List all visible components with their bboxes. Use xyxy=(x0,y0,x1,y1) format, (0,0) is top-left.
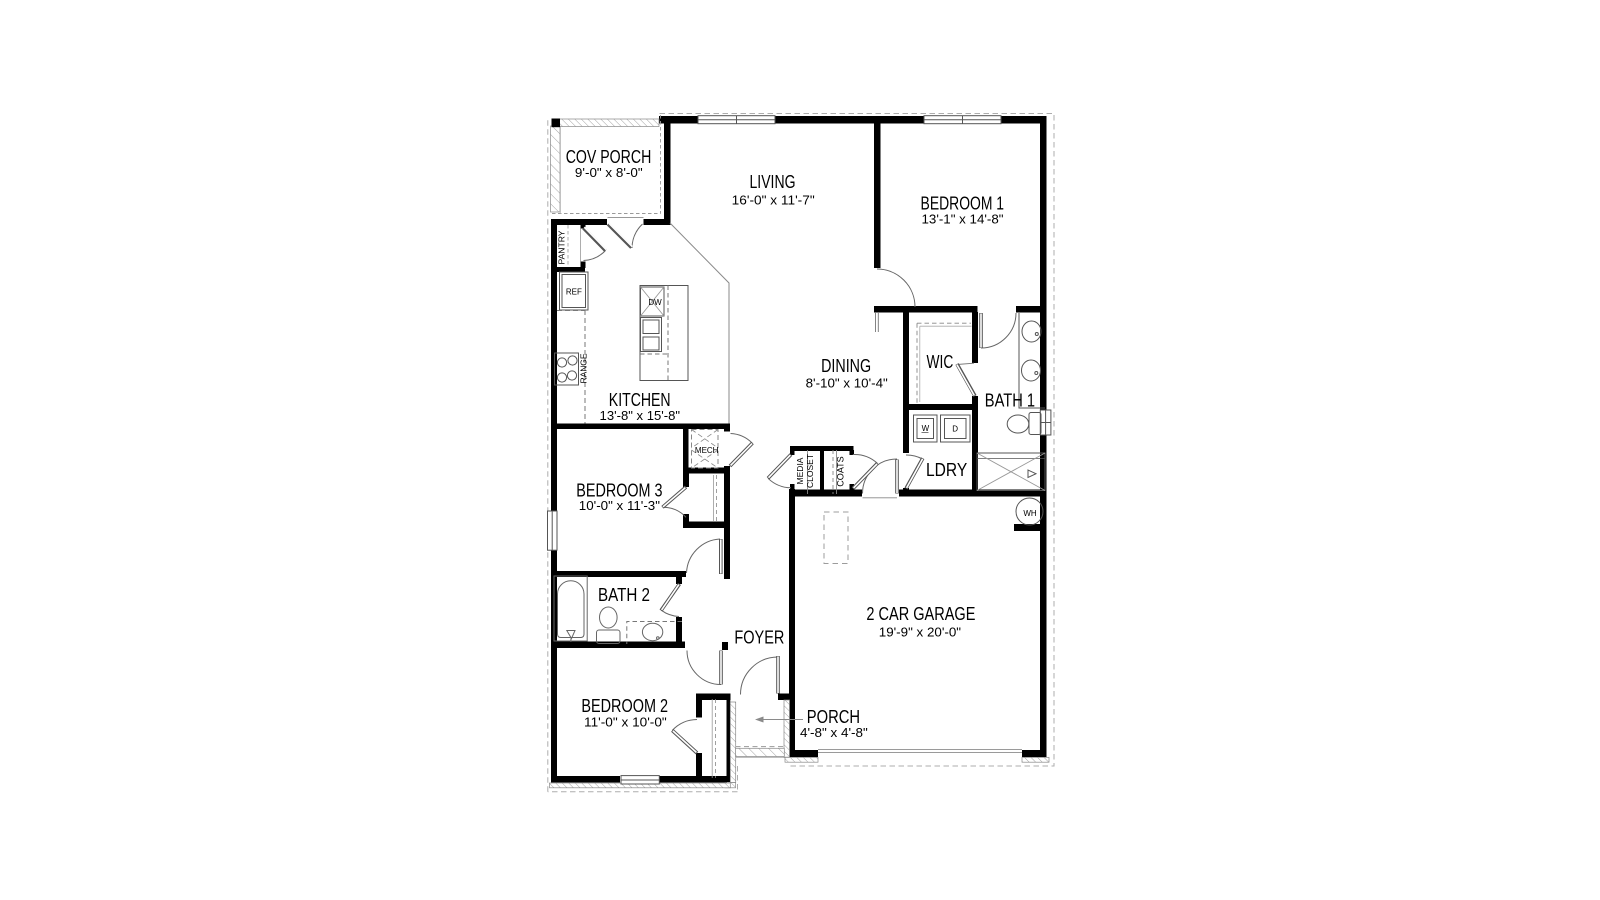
svg-text:19'-9" x 20'-0": 19'-9" x 20'-0" xyxy=(879,625,962,640)
svg-text:9'-0" x 8'-0": 9'-0" x 8'-0" xyxy=(575,165,643,180)
svg-text:DW: DW xyxy=(648,298,662,307)
svg-text:FOYER: FOYER xyxy=(734,626,784,647)
svg-text:MECH: MECH xyxy=(695,446,719,455)
svg-text:COV PORCH: COV PORCH xyxy=(566,146,652,167)
svg-text:LIVING: LIVING xyxy=(750,171,796,192)
svg-text:WIC: WIC xyxy=(927,351,954,372)
svg-text:RANGE: RANGE xyxy=(579,353,589,383)
svg-text:13'-8" x 15'-8": 13'-8" x 15'-8" xyxy=(600,408,681,423)
svg-text:BEDROOM 2: BEDROOM 2 xyxy=(581,695,668,716)
svg-text:11'-0" x 10'-0": 11'-0" x 10'-0" xyxy=(584,715,667,730)
svg-text:W: W xyxy=(922,424,930,433)
svg-text:REF: REF xyxy=(566,288,582,297)
svg-text:2 CAR GARAGE: 2 CAR GARAGE xyxy=(866,603,975,624)
svg-text:PANTRY: PANTRY xyxy=(557,230,567,264)
svg-text:10'-0" x 11'-3": 10'-0" x 11'-3" xyxy=(579,498,661,513)
svg-text:MEDIA: MEDIA xyxy=(795,457,805,484)
svg-text:DINING: DINING xyxy=(821,355,871,376)
svg-text:D: D xyxy=(952,425,958,434)
svg-text:8'-10" x 10'-4": 8'-10" x 10'-4" xyxy=(806,376,889,391)
svg-text:4'-8" x 4'-8": 4'-8" x 4'-8" xyxy=(800,725,868,740)
svg-text:BATH 1: BATH 1 xyxy=(985,390,1035,411)
svg-text:KITCHEN: KITCHEN xyxy=(609,389,671,410)
svg-text:PORCH: PORCH xyxy=(807,706,860,727)
svg-text:LDRY: LDRY xyxy=(926,459,967,480)
svg-text:13'-1" x 14'-8": 13'-1" x 14'-8" xyxy=(922,212,1004,227)
svg-text:CLOSET: CLOSET xyxy=(805,454,815,488)
svg-text:BATH 2: BATH 2 xyxy=(598,584,650,605)
svg-text:16'-0" x 11'-7": 16'-0" x 11'-7" xyxy=(732,193,815,208)
svg-text:WH: WH xyxy=(1023,509,1037,518)
svg-text:COATS: COATS xyxy=(836,456,846,486)
